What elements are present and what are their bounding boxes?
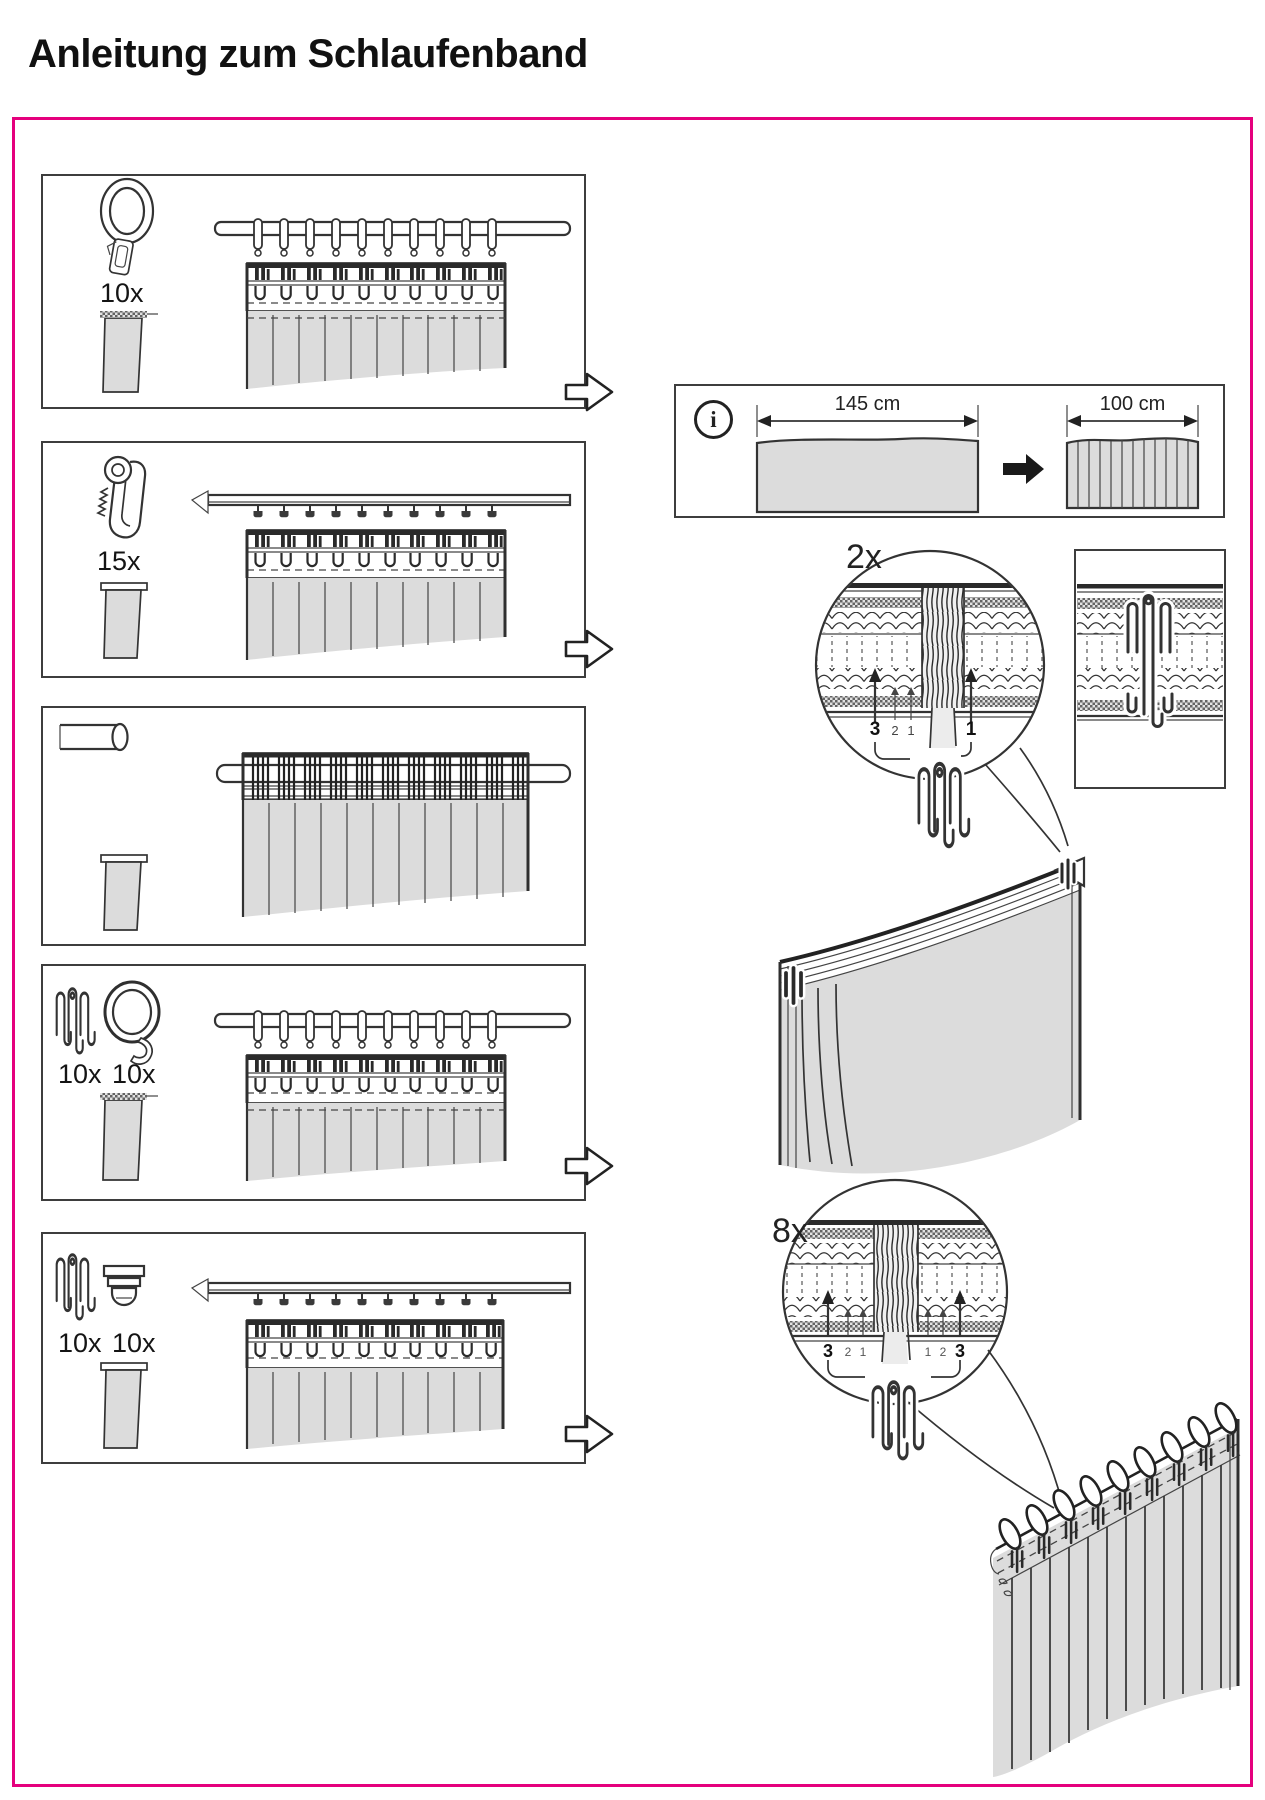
fabric-flat (757, 438, 978, 512)
pocket-number-1: 1 (904, 724, 918, 737)
detail-8x-label: 8x (772, 1214, 808, 1248)
panel4-count-rings: 10x (112, 1061, 156, 1088)
info-icon-letter: i (710, 407, 716, 433)
instruction-sheet: Anleitung zum Schlaufenband (0, 0, 1265, 1800)
band-hook-detail-box (1075, 550, 1225, 788)
panel5-count-gliders: 10x (112, 1330, 156, 1357)
curtain-bottom-illustration (991, 1400, 1241, 1777)
panel5-count-hooks: 10x (58, 1330, 102, 1357)
panel4-count-hooks: 10x (58, 1061, 102, 1088)
pocket-number-2-right: 2 (936, 1346, 950, 1358)
panel2-count-gliders: 15x (97, 548, 141, 575)
detail-circle-2x (805, 551, 1068, 852)
pocket-number-1-right: 1 (921, 1346, 935, 1358)
pocket-number-3: 3 (819, 1342, 837, 1360)
curtain-with-loop-band (247, 1320, 503, 1449)
panel1-count-rings: 10x (100, 280, 144, 307)
info-icon: i (694, 400, 733, 439)
pocket-number-1: 1 (856, 1346, 870, 1358)
pocket-number-3: 3 (866, 720, 884, 739)
measurement-flat: 145 cm (805, 394, 930, 414)
pocket-number-2: 2 (888, 724, 902, 737)
pocket-number-2: 2 (841, 1346, 855, 1358)
measurement-gathered: 100 cm (1070, 394, 1195, 414)
pocket-number-3-right: 3 (951, 1342, 969, 1360)
curtain-with-loop-band (247, 1055, 505, 1181)
curtain-middle-illustration (780, 858, 1084, 1173)
page-title: Anleitung zum Schlaufenband (28, 34, 588, 74)
panel-rod-pocket (42, 707, 585, 945)
detail-2x-label: 2x (846, 540, 882, 574)
pocket-number-1-right: 1 (962, 720, 980, 739)
instruction-artwork (0, 0, 1265, 1800)
